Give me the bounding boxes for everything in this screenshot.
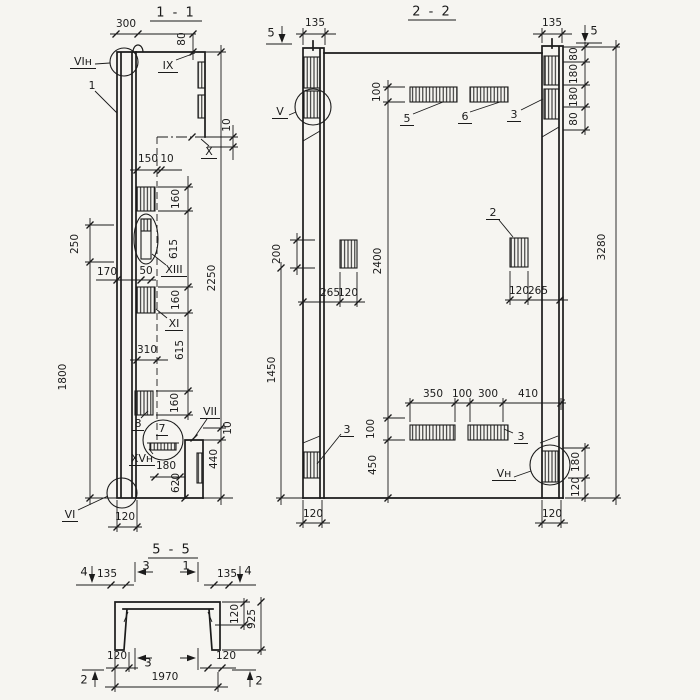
dim-350: 350 <box>423 388 443 400</box>
embedded-plate <box>197 453 203 483</box>
dim-120: 120 <box>107 650 127 662</box>
embedded-plate <box>542 451 558 482</box>
dim-80: 80 <box>176 32 188 45</box>
label-3: 3 <box>511 108 518 121</box>
dim-180: 180 <box>156 460 176 472</box>
dim-615: 615 <box>168 239 180 259</box>
dim-615: 615 <box>174 340 186 360</box>
dim-310: 310 <box>137 344 157 356</box>
dim-80: 80 <box>568 112 580 125</box>
drawing-svg: 1 - 1 3008010150101606151606151602250250… <box>0 0 700 700</box>
dim-3280: 3280 <box>596 234 608 261</box>
dim-300: 300 <box>478 388 498 400</box>
label-3: 3 <box>344 423 351 436</box>
label-VIн: VIн <box>74 55 92 68</box>
mark-2: 2 <box>255 674 262 688</box>
dim-180: 180 <box>568 87 580 107</box>
dim-120: 120 <box>542 508 562 520</box>
dim-135: 135 <box>217 568 237 580</box>
mark-4: 4 <box>244 564 251 578</box>
embedded-plate <box>198 95 205 118</box>
dim-925: 925 <box>246 609 258 629</box>
dim-150: 150 <box>138 153 158 165</box>
label-Vн: Vн <box>497 467 512 480</box>
label-6: 6 <box>462 110 469 123</box>
mark-1: 1 <box>182 559 189 573</box>
lifting-loop <box>133 45 143 52</box>
label-5: 5 <box>404 112 411 125</box>
label-V: V <box>276 105 284 118</box>
label-8: 8 <box>135 417 142 430</box>
embedded-plate <box>544 56 559 85</box>
embedded-plate <box>141 219 151 231</box>
dim-160: 160 <box>170 189 182 209</box>
label-XI: XI <box>169 317 180 330</box>
embedded-plate <box>510 238 528 267</box>
mark-4: 4 <box>80 565 87 579</box>
section-1-1-title: 1 - 1 <box>156 6 196 21</box>
dim-135: 135 <box>542 17 562 29</box>
mark-3: 3 <box>144 656 151 670</box>
section-1-1: 1 - 1 3008010150101606151606151602250250… <box>57 6 238 533</box>
label-7: 7 <box>159 422 166 435</box>
dim-100: 100 <box>371 82 383 102</box>
dim-300: 300 <box>116 18 136 30</box>
section-5-5-title: 5 - 5 <box>152 543 192 558</box>
embedded-plate <box>304 91 320 118</box>
dim-10: 10 <box>222 421 234 434</box>
dim-10: 10 <box>221 118 233 131</box>
embedded-plate <box>304 57 320 88</box>
dim-1970: 1970 <box>152 671 179 683</box>
mark-3: 3 <box>142 559 149 573</box>
corner-marks <box>124 612 212 622</box>
label-2: 2 <box>490 206 497 219</box>
dim-170: 170 <box>97 266 117 278</box>
dim-2250: 2250 <box>206 265 218 292</box>
drawing-sheet: 1 - 1 3008010150101606151606151602250250… <box>0 0 700 700</box>
dim-250: 250 <box>69 234 81 254</box>
channel-outline <box>115 602 220 650</box>
section-arrow-stems <box>282 25 585 40</box>
dim-50: 50 <box>139 265 152 277</box>
dim-120: 120 <box>570 477 582 497</box>
embedded-bar <box>410 87 457 102</box>
section-5-5: 5 - 5 13513512092512012019704431322 <box>76 543 266 693</box>
s11-annotations: 3008010150101606151606151602250250180017… <box>57 18 234 523</box>
dim-100: 100 <box>365 419 377 439</box>
embedded-plate <box>340 240 357 268</box>
dim-2400: 2400 <box>372 248 384 275</box>
dim-120: 120 <box>229 604 241 624</box>
dimension-ticks <box>87 31 620 691</box>
embedded-plate <box>544 89 559 119</box>
label-1: 1 <box>89 79 96 92</box>
embedded-plate <box>137 187 155 211</box>
mark-5: 5 <box>267 26 274 40</box>
dim-1450: 1450 <box>266 357 278 384</box>
dim-100: 100 <box>452 388 472 400</box>
dim-120: 120 <box>303 508 323 520</box>
dim-80: 80 <box>568 47 580 60</box>
embedded-bar <box>410 425 455 440</box>
dim-160: 160 <box>169 393 181 413</box>
dim-10: 10 <box>160 153 173 165</box>
label-XVн: XVн <box>131 452 153 465</box>
label-XIII: XIII <box>165 263 182 276</box>
dim-120: 120 <box>216 650 236 662</box>
label-VII: VII <box>203 405 217 418</box>
embedded-plate <box>137 287 155 313</box>
label-IX: IX <box>163 59 174 72</box>
embedded-plate <box>304 452 320 478</box>
dim-410: 410 <box>518 388 538 400</box>
dim-135: 135 <box>97 568 117 580</box>
dim-tick <box>189 134 196 141</box>
dim-120: 120 <box>115 511 135 523</box>
embedded-plate <box>135 391 153 415</box>
label-X: X <box>205 145 213 158</box>
embedded-bar <box>468 425 508 440</box>
embedded-bar <box>470 87 508 102</box>
dim-440: 440 <box>208 449 220 469</box>
label-3: 3 <box>518 430 525 443</box>
section-2-2-title: 2 - 2 <box>412 5 452 20</box>
dim-180: 180 <box>570 452 582 472</box>
section-2-2: 2 - 2 1351358018018080328010024002001450… <box>266 5 621 529</box>
embedded-plate <box>198 62 205 88</box>
dim-200: 200 <box>271 244 283 264</box>
dim-120: 120 <box>509 285 529 297</box>
dim-160: 160 <box>170 290 182 310</box>
dim-180: 180 <box>568 64 580 84</box>
dim-120: 120 <box>338 287 358 299</box>
embedded-plate <box>150 443 176 450</box>
dim-450: 450 <box>367 455 379 475</box>
label-VI: VI <box>65 508 76 521</box>
dim-135: 135 <box>305 17 325 29</box>
mark-5: 5 <box>590 24 597 38</box>
dim-265: 265 <box>528 285 548 297</box>
dim-1800: 1800 <box>57 364 69 391</box>
mark-2: 2 <box>80 673 87 687</box>
